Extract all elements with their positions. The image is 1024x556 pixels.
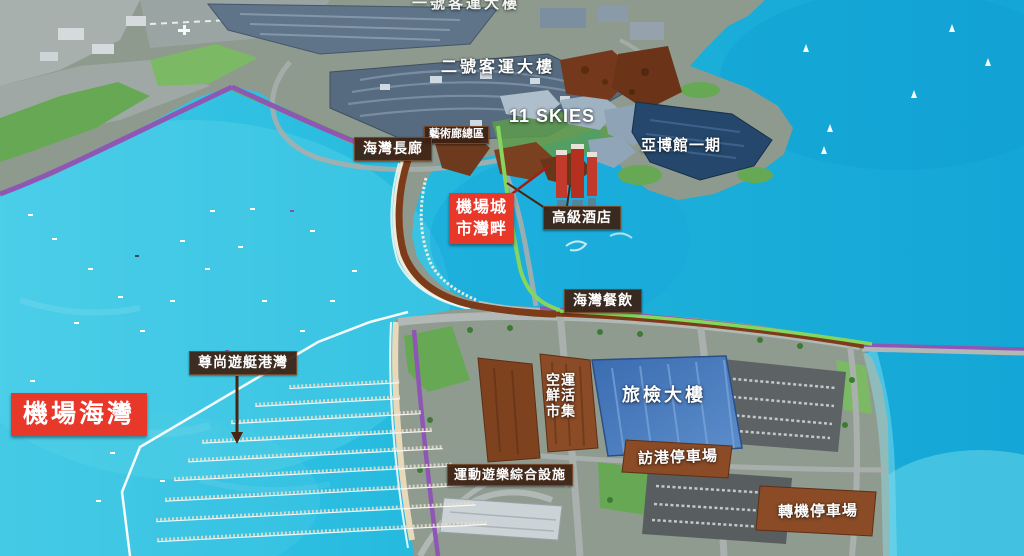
eleven-skies-label: 11 SKIES — [509, 105, 595, 128]
transfer-parking-label: 轉機停車場 — [778, 502, 858, 522]
visitor-parking-label: 訪港停車場 — [638, 448, 719, 470]
airport-city-map: 一號客運大樓 二號客運大樓 11 SKIES 亞博館一期 藝術廊總區 海灣長廊 … — [0, 0, 1024, 556]
airport-bay-label: 機場海灣 — [11, 393, 147, 436]
bay-dining-tag: 海灣餐飲 — [564, 289, 642, 313]
sports-complex-tag: 運動遊樂綜合設施 — [447, 464, 573, 486]
terminal-2-label: 二號客運大樓 — [441, 58, 555, 78]
passenger-clearance-label: 旅檢大樓 — [622, 384, 706, 407]
terminal-1-label: 一號客運大樓 — [412, 0, 520, 14]
bay-promenade-tag: 海灣長廊 — [354, 137, 432, 161]
airport-city-waterfront-label: 機場城 市灣畔 — [449, 193, 514, 244]
yacht-harbor-tag: 尊尚遊艇港灣 — [189, 351, 297, 375]
expo-phase-1-label: 亞博館一期 — [641, 137, 721, 156]
arts-hub-tag: 藝術廊總區 — [424, 126, 489, 144]
luxury-hotel-tag: 高級酒店 — [543, 206, 621, 230]
air-fresh-market-label: 空運 鮮活 市集 — [546, 373, 576, 419]
